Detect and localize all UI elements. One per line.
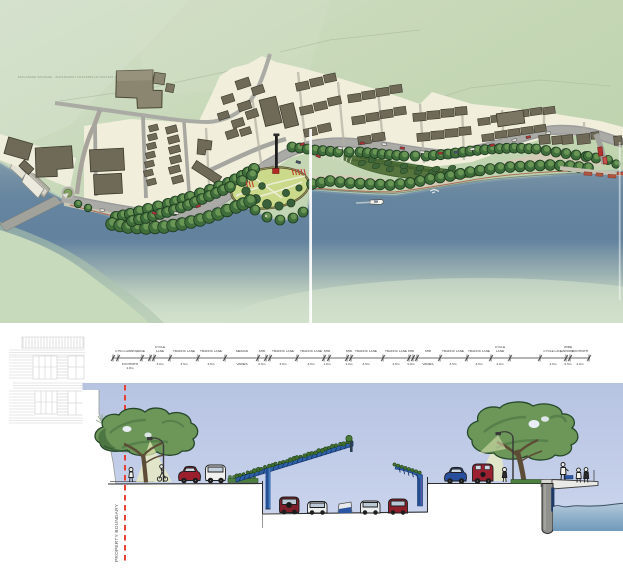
svg-text:3.5m: 3.5m: [476, 362, 483, 366]
svg-text:3.5m: 3.5m: [208, 362, 215, 366]
svg-text:CYCLE LANE: CYCLE LANE: [543, 349, 562, 353]
svg-text:1.0m: 1.0m: [324, 362, 331, 366]
svg-text:SHD: SHD: [425, 349, 432, 353]
svg-text:MEDIAN: MEDIAN: [236, 349, 248, 353]
svg-text:3.0m: 3.0m: [157, 362, 164, 366]
svg-text:SHD: SHD: [324, 349, 331, 353]
svg-text:TRAFFIC LANE: TRAFFIC LANE: [355, 349, 377, 353]
svg-text:LANE: LANE: [496, 349, 504, 353]
svg-text:ESPLANADE UPGRADE - WATERFRONT: ESPLANADE UPGRADE - WATERFRONT MASTERPLA…: [18, 75, 129, 79]
svg-text:2.0m: 2.0m: [497, 362, 504, 366]
svg-text:SHD: SHD: [346, 349, 353, 353]
svg-text:TRAFFIC LANE: TRAFFIC LANE: [173, 349, 195, 353]
svg-text:TRAFFIC LANE: TRAFFIC LANE: [385, 349, 407, 353]
svg-text:PROPERTY BOUNDARY: PROPERTY BOUNDARY: [114, 503, 120, 562]
svg-text:SHD: SHD: [259, 349, 266, 353]
svg-text:1.8m: 1.8m: [127, 366, 134, 370]
svg-text:4.0m: 4.0m: [550, 362, 557, 366]
svg-text:TRAFFIC LANE: TRAFFIC LANE: [200, 349, 222, 353]
svg-text:TRAFFIC LANE: TRAFFIC LANE: [300, 349, 322, 353]
svg-text:TRAFFIC LANE: TRAFFIC LANE: [442, 349, 464, 353]
svg-text:LANE: LANE: [156, 349, 164, 353]
svg-text:3.75m LAWN/VERGE: 3.75m LAWN/VERGE: [115, 349, 145, 353]
svg-text:3.5m: 3.5m: [393, 362, 400, 366]
svg-text:3.0m: 3.0m: [280, 362, 287, 366]
svg-text:VARIES: VARIES: [422, 362, 433, 366]
svg-text:TRAFFIC LANE: TRAFFIC LANE: [272, 349, 294, 353]
svg-text:2.0m: 2.0m: [577, 362, 584, 366]
svg-text:3.5m: 3.5m: [181, 362, 188, 366]
svg-text:0.5m: 0.5m: [565, 362, 572, 366]
svg-text:3.5m: 3.5m: [363, 362, 370, 366]
svg-text:3.5m: 3.5m: [308, 362, 315, 366]
svg-text:1.0m: 1.0m: [346, 362, 353, 366]
svg-text:0.6m: 0.6m: [408, 362, 415, 366]
svg-text:0.6m: 0.6m: [259, 362, 266, 366]
svg-text:VARIES: VARIES: [236, 362, 247, 366]
svg-text:TRAFFIC LANE: TRAFFIC LANE: [468, 349, 490, 353]
svg-text:SHD: SHD: [408, 349, 415, 353]
svg-text:3.5m: 3.5m: [450, 362, 457, 366]
svg-text:FOOTPATH: FOOTPATH: [572, 349, 588, 353]
